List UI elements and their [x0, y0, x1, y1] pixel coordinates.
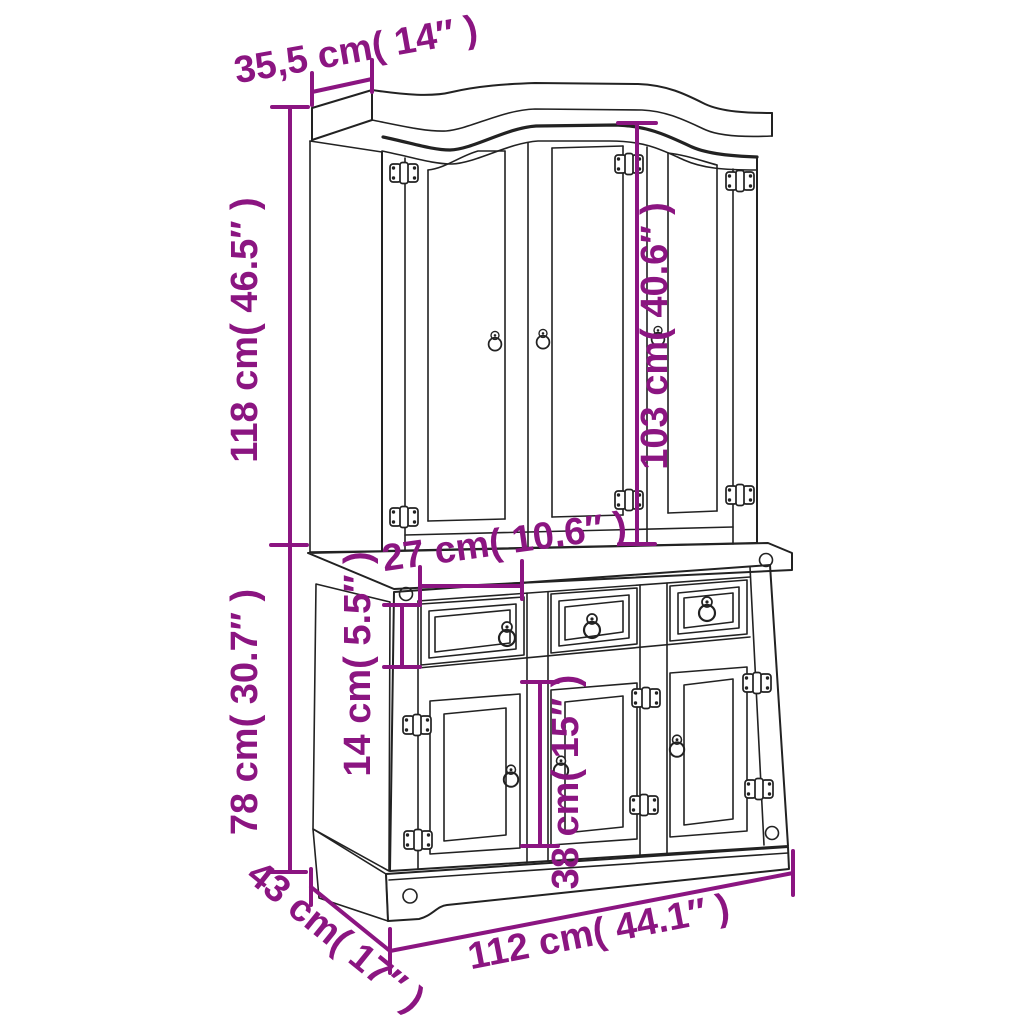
door-knob-icon — [670, 735, 684, 757]
dimension-base-height: 78 cm( 30.7″ ) — [224, 545, 306, 872]
drawer-pull-icon — [499, 622, 515, 646]
drawer-pull-icon — [584, 614, 600, 638]
dimension-hutch-height: 118 cm( 46.5″ ) — [224, 107, 308, 545]
drawer-pull-icon — [699, 597, 715, 621]
furniture-dimension-diagram: 35,5 cm( 14″ ) 118 cm( 46.5″ ) 103 cm( 4… — [0, 0, 1024, 1024]
hinge-icon — [390, 163, 418, 184]
dimension-label-lower-door-height: 38 cm( 15″ ) — [545, 675, 587, 890]
dimension-diagram-canvas: 35,5 cm( 14″ ) 118 cm( 46.5″ ) 103 cm( 4… — [0, 0, 1024, 1024]
door-knob-icon — [537, 329, 550, 348]
dimension-label-base-depth: 43 cm( 17″ ) — [239, 853, 432, 1021]
dimension-label-top-depth: 35,5 cm( 14″ ) — [231, 8, 481, 92]
hutch-side-panel — [310, 141, 382, 552]
dimension-base-depth: 43 cm( 17″ ) — [239, 853, 432, 1021]
hinge-icon — [403, 715, 431, 736]
hutch-door-middle — [552, 146, 623, 517]
lower-door-right — [670, 667, 747, 837]
dimension-drawer-height: 14 cm( 5.5″ ) — [337, 551, 420, 776]
hutch-face-frame — [382, 143, 757, 551]
hinge-icon — [630, 795, 658, 816]
hinge-icon — [632, 688, 660, 709]
hinge-icon — [390, 507, 418, 528]
dimension-label-base-height: 78 cm( 30.7″ ) — [224, 589, 266, 835]
dimension-lower-door-height: 38 cm( 15″ ) — [522, 675, 587, 890]
hinge-icon — [726, 485, 754, 506]
peg-icon — [403, 889, 417, 903]
dimension-label-drawer-height: 14 cm( 5.5″ ) — [337, 551, 379, 776]
hinge-icon — [745, 779, 773, 800]
dimension-top-depth: 35,5 cm( 14″ ) — [231, 8, 481, 105]
dimension-label-hutch-height: 118 cm( 46.5″ ) — [224, 197, 266, 462]
hinge-icon — [743, 673, 771, 694]
hinge-icon — [404, 830, 432, 851]
dimension-label-overall-width: 112 cm( 44.1″ ) — [464, 886, 733, 978]
drawer-right — [670, 580, 747, 641]
sideboard-face-frame — [390, 565, 788, 871]
peg-icon — [766, 827, 779, 840]
dimension-label-hutch-door-height: 103 cm( 40.6″ ) — [634, 202, 676, 469]
peg-icon — [400, 588, 413, 601]
door-knob-icon — [489, 331, 502, 350]
hinge-icon — [726, 171, 754, 192]
